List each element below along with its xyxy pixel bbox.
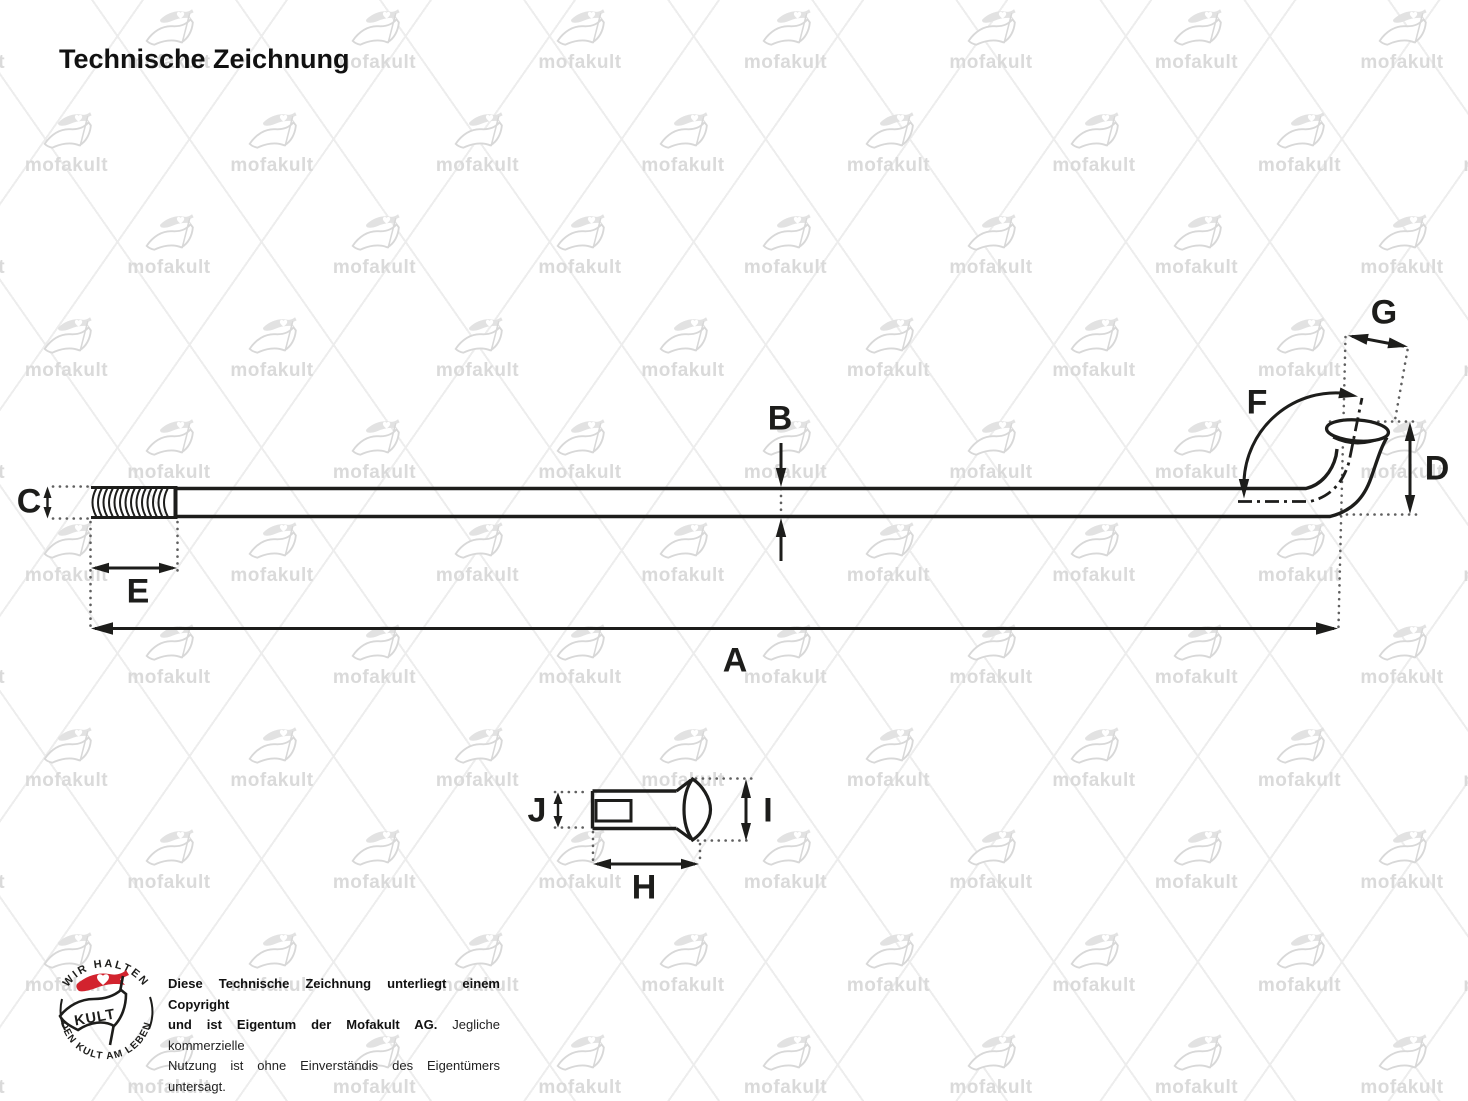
- watermark-tile: mofakult: [1345, 622, 1459, 687]
- mofakult-flag-icon: [141, 622, 197, 662]
- watermark-text: mofakult: [1140, 873, 1254, 892]
- watermark-tile: mofakult: [318, 622, 432, 687]
- mofakult-flag-icon: [963, 1032, 1019, 1072]
- dim-label-e: E: [127, 573, 150, 612]
- dim-label-d: D: [1425, 450, 1450, 489]
- watermark-tile: mofakult: [523, 622, 637, 687]
- mofakult-flag-icon: [655, 520, 711, 560]
- mofakult-flag-icon: [347, 622, 403, 662]
- watermark-tile: mofakult: [1243, 520, 1357, 585]
- watermark-text: mofakult: [1448, 566, 1468, 585]
- watermark-text: mofakult: [0, 258, 21, 277]
- watermark-tile: mofakult: [1140, 827, 1254, 892]
- mofakult-badge-logo: WIR HALTEN DEN KULT AM LEBEN KULT: [46, 952, 166, 1072]
- watermark-text: mofakult: [934, 463, 1048, 482]
- watermark-tile: mofakult: [729, 1032, 843, 1097]
- watermark-tile: mofakult: [729, 7, 843, 72]
- mofakult-flag-icon: [450, 520, 506, 560]
- mofakult-flag-icon: [1272, 930, 1328, 970]
- mofakult-flag-icon: [861, 725, 917, 765]
- mofakult-flag-icon: [1066, 725, 1122, 765]
- watermark-tile: mofakult: [1448, 520, 1468, 585]
- watermark-tile: mofakult: [1243, 725, 1357, 790]
- watermark-text: mofakult: [1448, 361, 1468, 380]
- watermark-tile: mofakult: [523, 417, 637, 482]
- watermark-text: mofakult: [318, 258, 432, 277]
- watermark-text: mofakult: [1037, 361, 1151, 380]
- mofakult-flag-icon: [1272, 520, 1328, 560]
- watermark-text: mofakult: [1345, 668, 1459, 687]
- watermark-text: mofakult: [421, 771, 535, 790]
- watermark-tile: mofakult: [523, 827, 637, 892]
- watermark-tile: mofakult: [1448, 315, 1468, 380]
- mofakult-flag-icon: [141, 827, 197, 867]
- mofakult-flag-icon: [552, 7, 608, 47]
- watermark-tile: mofakult: [421, 725, 535, 790]
- watermark-text: mofakult: [1448, 976, 1468, 995]
- watermark-layer: mofakultmofakultmofakultmofakultmofakult…: [0, 0, 1468, 1101]
- watermark-text: mofakult: [832, 566, 946, 585]
- watermark-tile: mofakult: [1345, 7, 1459, 72]
- mofakult-flag-icon: [1169, 417, 1225, 457]
- watermark-text: mofakult: [1243, 156, 1357, 175]
- dim-label-i: I: [763, 792, 772, 831]
- copyright-line-3: Nutzung ist ohne Einverständis des Eigen…: [168, 1056, 500, 1097]
- mofakult-flag-icon: [655, 315, 711, 355]
- dim-label-f: F: [1247, 384, 1268, 423]
- mofakult-flag-icon: [1374, 212, 1430, 252]
- mofakult-flag-icon: [1374, 827, 1430, 867]
- watermark-text: mofakult: [421, 361, 535, 380]
- mofakult-flag-icon: [1374, 7, 1430, 47]
- watermark-tile: mofakult: [215, 315, 329, 380]
- mofakult-flag-icon: [1169, 622, 1225, 662]
- mofakult-flag-icon: [963, 417, 1019, 457]
- watermark-tile: mofakult: [934, 212, 1048, 277]
- watermark-text: mofakult: [1140, 258, 1254, 277]
- watermark-text: mofakult: [1345, 1078, 1459, 1097]
- mofakult-flag-icon: [141, 212, 197, 252]
- watermark-tile: mofakult: [626, 315, 740, 380]
- watermark-text: mofakult: [0, 668, 21, 687]
- mofakult-flag-icon: [39, 110, 95, 150]
- watermark-text: mofakult: [729, 258, 843, 277]
- mofakult-flag-icon: [1066, 315, 1122, 355]
- watermark-tile: mofakult: [1037, 315, 1151, 380]
- watermark-text: mofakult: [1140, 1078, 1254, 1097]
- watermark-text: mofakult: [1243, 771, 1357, 790]
- watermark-text: mofakult: [832, 361, 946, 380]
- watermark-tile: mofakult: [934, 622, 1048, 687]
- mofakult-flag-icon: [39, 520, 95, 560]
- watermark-tile: mofakult: [215, 520, 329, 585]
- watermark-text: mofakult: [934, 668, 1048, 687]
- mofakult-flag-icon: [758, 622, 814, 662]
- copyright-text: Diese Technische Zeichnung unterliegt ei…: [168, 974, 500, 1101]
- watermark-tile: mofakult: [1243, 315, 1357, 380]
- watermark-tile: mofakult: [832, 930, 946, 995]
- watermark-text: mofakult: [934, 53, 1048, 72]
- watermark-text: mofakult: [832, 156, 946, 175]
- watermark-text: mofakult: [112, 463, 226, 482]
- watermark-tile: mofakult: [0, 417, 21, 482]
- watermark-tile: mofakult: [112, 212, 226, 277]
- watermark-tile: mofakult: [1345, 827, 1459, 892]
- mofakult-flag-icon: [552, 622, 608, 662]
- watermark-tile: mofakult: [832, 725, 946, 790]
- page: mofakultmofakultmofakultmofakultmofakult…: [0, 0, 1468, 1101]
- watermark-tile: mofakult: [1243, 110, 1357, 175]
- mofakult-flag-icon: [552, 417, 608, 457]
- mofakult-flag-icon: [1169, 212, 1225, 252]
- watermark-text: mofakult: [934, 258, 1048, 277]
- mofakult-flag-icon: [963, 827, 1019, 867]
- watermark-tile: mofakult: [1448, 110, 1468, 175]
- watermark-tile: mofakult: [112, 622, 226, 687]
- watermark-tile: mofakult: [523, 7, 637, 72]
- mofakult-flag-icon: [450, 725, 506, 765]
- watermark-text: mofakult: [832, 771, 946, 790]
- watermark-text: mofakult: [1345, 53, 1459, 72]
- dim-label-b: B: [768, 400, 793, 439]
- watermark-text: mofakult: [0, 463, 21, 482]
- watermark-tile: mofakult: [0, 622, 21, 687]
- watermark-tile: mofakult: [832, 110, 946, 175]
- mofakult-flag-icon: [244, 725, 300, 765]
- watermark-text: mofakult: [832, 976, 946, 995]
- watermark-tile: mofakult: [626, 520, 740, 585]
- watermark-text: mofakult: [215, 361, 329, 380]
- dim-label-c: C: [17, 483, 42, 522]
- watermark-tile: mofakult: [421, 520, 535, 585]
- watermark-tile: mofakult: [729, 827, 843, 892]
- watermark-tile: mofakult: [0, 827, 21, 892]
- watermark-text: mofakult: [934, 873, 1048, 892]
- watermark-text: mofakult: [112, 668, 226, 687]
- watermark-text: mofakult: [10, 566, 124, 585]
- dim-label-j: J: [528, 792, 547, 831]
- watermark-tile: mofakult: [318, 417, 432, 482]
- mofakult-flag-icon: [552, 212, 608, 252]
- watermark-tile: mofakult: [1140, 212, 1254, 277]
- watermark-text: mofakult: [1140, 463, 1254, 482]
- watermark-text: mofakult: [112, 258, 226, 277]
- watermark-text: mofakult: [523, 258, 637, 277]
- mofakult-flag-icon: [450, 315, 506, 355]
- mofakult-flag-icon: [1272, 110, 1328, 150]
- mofakult-flag-icon: [861, 930, 917, 970]
- watermark-text: mofakult: [1345, 873, 1459, 892]
- watermark-tile: mofakult: [729, 212, 843, 277]
- watermark-tile: mofakult: [0, 7, 21, 72]
- watermark-text: mofakult: [729, 1078, 843, 1097]
- watermark-text: mofakult: [318, 668, 432, 687]
- mofakult-flag-icon: [758, 1032, 814, 1072]
- mofakult-flag-icon: [1066, 930, 1122, 970]
- mofakult-flag-icon: [1272, 315, 1328, 355]
- mofakult-flag-icon: [450, 110, 506, 150]
- watermark-text: mofakult: [215, 566, 329, 585]
- watermark-text: mofakult: [729, 873, 843, 892]
- dim-label-a: A: [723, 642, 748, 681]
- watermark-tile: mofakult: [112, 417, 226, 482]
- watermark-text: mofakult: [10, 771, 124, 790]
- mofakult-flag-icon: [244, 110, 300, 150]
- watermark-tile: mofakult: [1140, 622, 1254, 687]
- watermark-text: mofakult: [626, 361, 740, 380]
- watermark-tile: mofakult: [1037, 520, 1151, 585]
- watermark-tile: mofakult: [1345, 1032, 1459, 1097]
- mofakult-flag-icon: [244, 520, 300, 560]
- watermark-text: mofakult: [626, 156, 740, 175]
- mofakult-flag-icon: [963, 212, 1019, 252]
- mofakult-flag-icon: [1169, 1032, 1225, 1072]
- watermark-text: mofakult: [318, 463, 432, 482]
- watermark-tile: mofakult: [421, 110, 535, 175]
- copyright-line-1: Diese Technische Zeichnung unterliegt ei…: [168, 974, 500, 1015]
- mofakult-flag-icon: [963, 622, 1019, 662]
- watermark-tile: mofakult: [1037, 725, 1151, 790]
- watermark-text: mofakult: [523, 873, 637, 892]
- watermark-tile: mofakult: [934, 7, 1048, 72]
- copyright-line-4: Verstösse werden rechtlich verfolgt.: [168, 1098, 500, 1101]
- watermark-tile: mofakult: [934, 1032, 1048, 1097]
- footer: WIR HALTEN DEN KULT AM LEBEN KULT Diese …: [0, 940, 700, 1100]
- mofakult-flag-icon: [1169, 827, 1225, 867]
- watermark-tile: mofakult: [112, 827, 226, 892]
- mofakult-flag-icon: [347, 212, 403, 252]
- watermark-tile: mofakult: [10, 110, 124, 175]
- watermark-text: mofakult: [1140, 53, 1254, 72]
- watermark-text: mofakult: [10, 361, 124, 380]
- mofakult-flag-icon: [1374, 417, 1430, 457]
- watermark-text: mofakult: [934, 1078, 1048, 1097]
- watermark-tile: mofakult: [1037, 110, 1151, 175]
- watermark-text: mofakult: [215, 771, 329, 790]
- watermark-text: mofakult: [421, 156, 535, 175]
- mofakult-flag-icon: [1066, 110, 1122, 150]
- mofakult-flag-icon: [655, 110, 711, 150]
- watermark-text: mofakult: [729, 463, 843, 482]
- watermark-tile: mofakult: [1243, 930, 1357, 995]
- mofakult-flag-icon: [1169, 7, 1225, 47]
- watermark-tile: mofakult: [1448, 930, 1468, 995]
- watermark-tile: mofakult: [626, 110, 740, 175]
- mofakult-flag-icon: [244, 315, 300, 355]
- watermark-text: mofakult: [0, 873, 21, 892]
- watermark-text: mofakult: [523, 463, 637, 482]
- watermark-text: mofakult: [626, 771, 740, 790]
- dim-label-h: H: [632, 869, 657, 908]
- watermark-text: mofakult: [1243, 566, 1357, 585]
- watermark-tile: mofakult: [318, 212, 432, 277]
- watermark-tile: mofakult: [934, 417, 1048, 482]
- watermark-text: mofakult: [0, 53, 21, 72]
- watermark-tile: mofakult: [10, 725, 124, 790]
- watermark-text: mofakult: [1037, 156, 1151, 175]
- dim-label-g: G: [1371, 294, 1397, 333]
- mofakult-flag-icon: [141, 417, 197, 457]
- watermark-tile: mofakult: [1140, 417, 1254, 482]
- watermark-tile: mofakult: [1345, 212, 1459, 277]
- mofakult-flag-icon: [141, 7, 197, 47]
- mofakult-flag-icon: [1374, 1032, 1430, 1072]
- watermark-tile: mofakult: [318, 827, 432, 892]
- watermark-tile: mofakult: [832, 520, 946, 585]
- mofakult-flag-icon: [39, 725, 95, 765]
- copyright-line-2: und ist Eigentum der Mofakult AG. Jeglic…: [168, 1015, 500, 1056]
- watermark-text: mofakult: [1345, 258, 1459, 277]
- watermark-tile: mofakult: [934, 827, 1048, 892]
- watermark-tile: mofakult: [1140, 1032, 1254, 1097]
- watermark-tile: mofakult: [1140, 7, 1254, 72]
- mofakult-flag-icon: [861, 110, 917, 150]
- mofakult-flag-icon: [861, 315, 917, 355]
- watermark-text: mofakult: [10, 156, 124, 175]
- watermark-text: mofakult: [1448, 156, 1468, 175]
- watermark-tile: mofakult: [0, 212, 21, 277]
- watermark-text: mofakult: [215, 156, 329, 175]
- mofakult-flag-icon: [1066, 520, 1122, 560]
- watermark-tile: mofakult: [1037, 930, 1151, 995]
- mofakult-flag-icon: [347, 417, 403, 457]
- mofakult-flag-icon: [347, 7, 403, 47]
- mofakult-flag-icon: [758, 827, 814, 867]
- mofakult-flag-icon: [552, 827, 608, 867]
- watermark-text: mofakult: [1037, 976, 1151, 995]
- watermark-text: mofakult: [1448, 771, 1468, 790]
- mofakult-flag-icon: [39, 315, 95, 355]
- watermark-tile: mofakult: [215, 725, 329, 790]
- mofakult-flag-icon: [655, 725, 711, 765]
- mofakult-flag-icon: [347, 827, 403, 867]
- mofakult-flag-icon: [758, 212, 814, 252]
- watermark-text: mofakult: [1140, 668, 1254, 687]
- watermark-tile: mofakult: [215, 110, 329, 175]
- watermark-text: mofakult: [112, 873, 226, 892]
- mofakult-flag-icon: [758, 7, 814, 47]
- watermark-text: mofakult: [523, 668, 637, 687]
- watermark-text: mofakult: [1243, 976, 1357, 995]
- watermark-text: mofakult: [626, 566, 740, 585]
- watermark-tile: mofakult: [1448, 725, 1468, 790]
- watermark-tile: mofakult: [421, 315, 535, 380]
- watermark-tile: mofakult: [10, 520, 124, 585]
- watermark-tile: mofakult: [832, 315, 946, 380]
- watermark-text: mofakult: [421, 566, 535, 585]
- watermark-text: mofakult: [318, 873, 432, 892]
- watermark-text: mofakult: [729, 53, 843, 72]
- mofakult-flag-icon: [1272, 725, 1328, 765]
- watermark-text: mofakult: [523, 53, 637, 72]
- watermark-tile: mofakult: [626, 725, 740, 790]
- watermark-text: mofakult: [1037, 566, 1151, 585]
- mofakult-flag-icon: [963, 7, 1019, 47]
- mofakult-flag-icon: [1374, 622, 1430, 662]
- watermark-text: mofakult: [1037, 771, 1151, 790]
- watermark-text: mofakult: [1243, 361, 1357, 380]
- watermark-tile: mofakult: [523, 212, 637, 277]
- watermark-tile: mofakult: [10, 315, 124, 380]
- mofakult-flag-icon: [861, 520, 917, 560]
- page-title: Technische Zeichnung: [59, 44, 350, 75]
